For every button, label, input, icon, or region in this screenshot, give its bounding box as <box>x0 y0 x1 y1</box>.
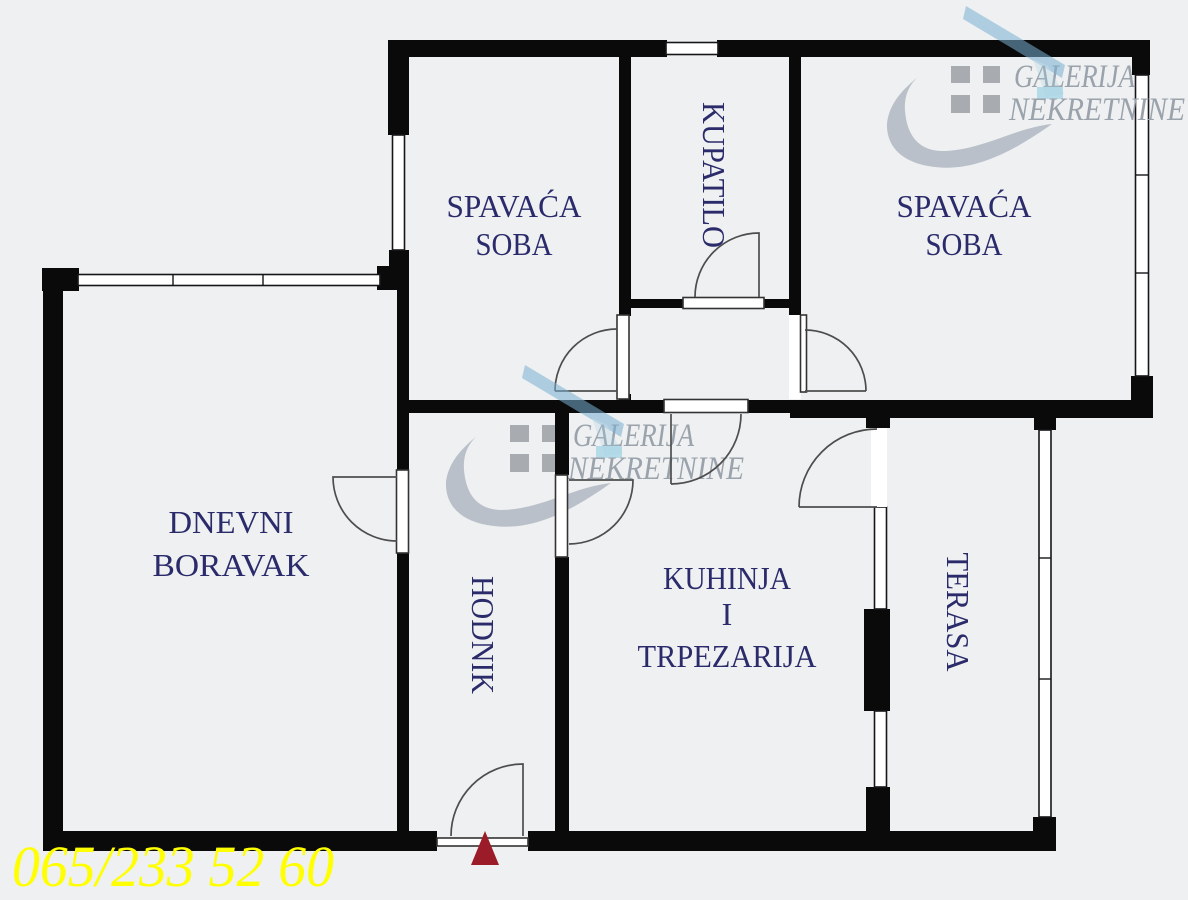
svg-text:TRPEZARIJA: TRPEZARIJA <box>638 638 817 674</box>
svg-text:SOBA: SOBA <box>926 226 1003 262</box>
svg-text:KUPATILO: KUPATILO <box>696 102 732 248</box>
svg-text:DNEVNI: DNEVNI <box>169 504 294 540</box>
svg-text:SPAVAĆA: SPAVAĆA <box>447 188 582 224</box>
svg-text:SOBA: SOBA <box>476 226 553 262</box>
svg-text:I: I <box>722 596 733 632</box>
svg-text:HODNIK: HODNIK <box>465 576 501 694</box>
svg-text:065/233 52 60: 065/233 52 60 <box>12 834 334 899</box>
svg-text:TERASA: TERASA <box>940 553 976 672</box>
svg-text:SPAVAĆA: SPAVAĆA <box>897 188 1032 224</box>
svg-text:KUHINJA: KUHINJA <box>663 560 791 596</box>
svg-text:BORAVAK: BORAVAK <box>153 547 310 583</box>
